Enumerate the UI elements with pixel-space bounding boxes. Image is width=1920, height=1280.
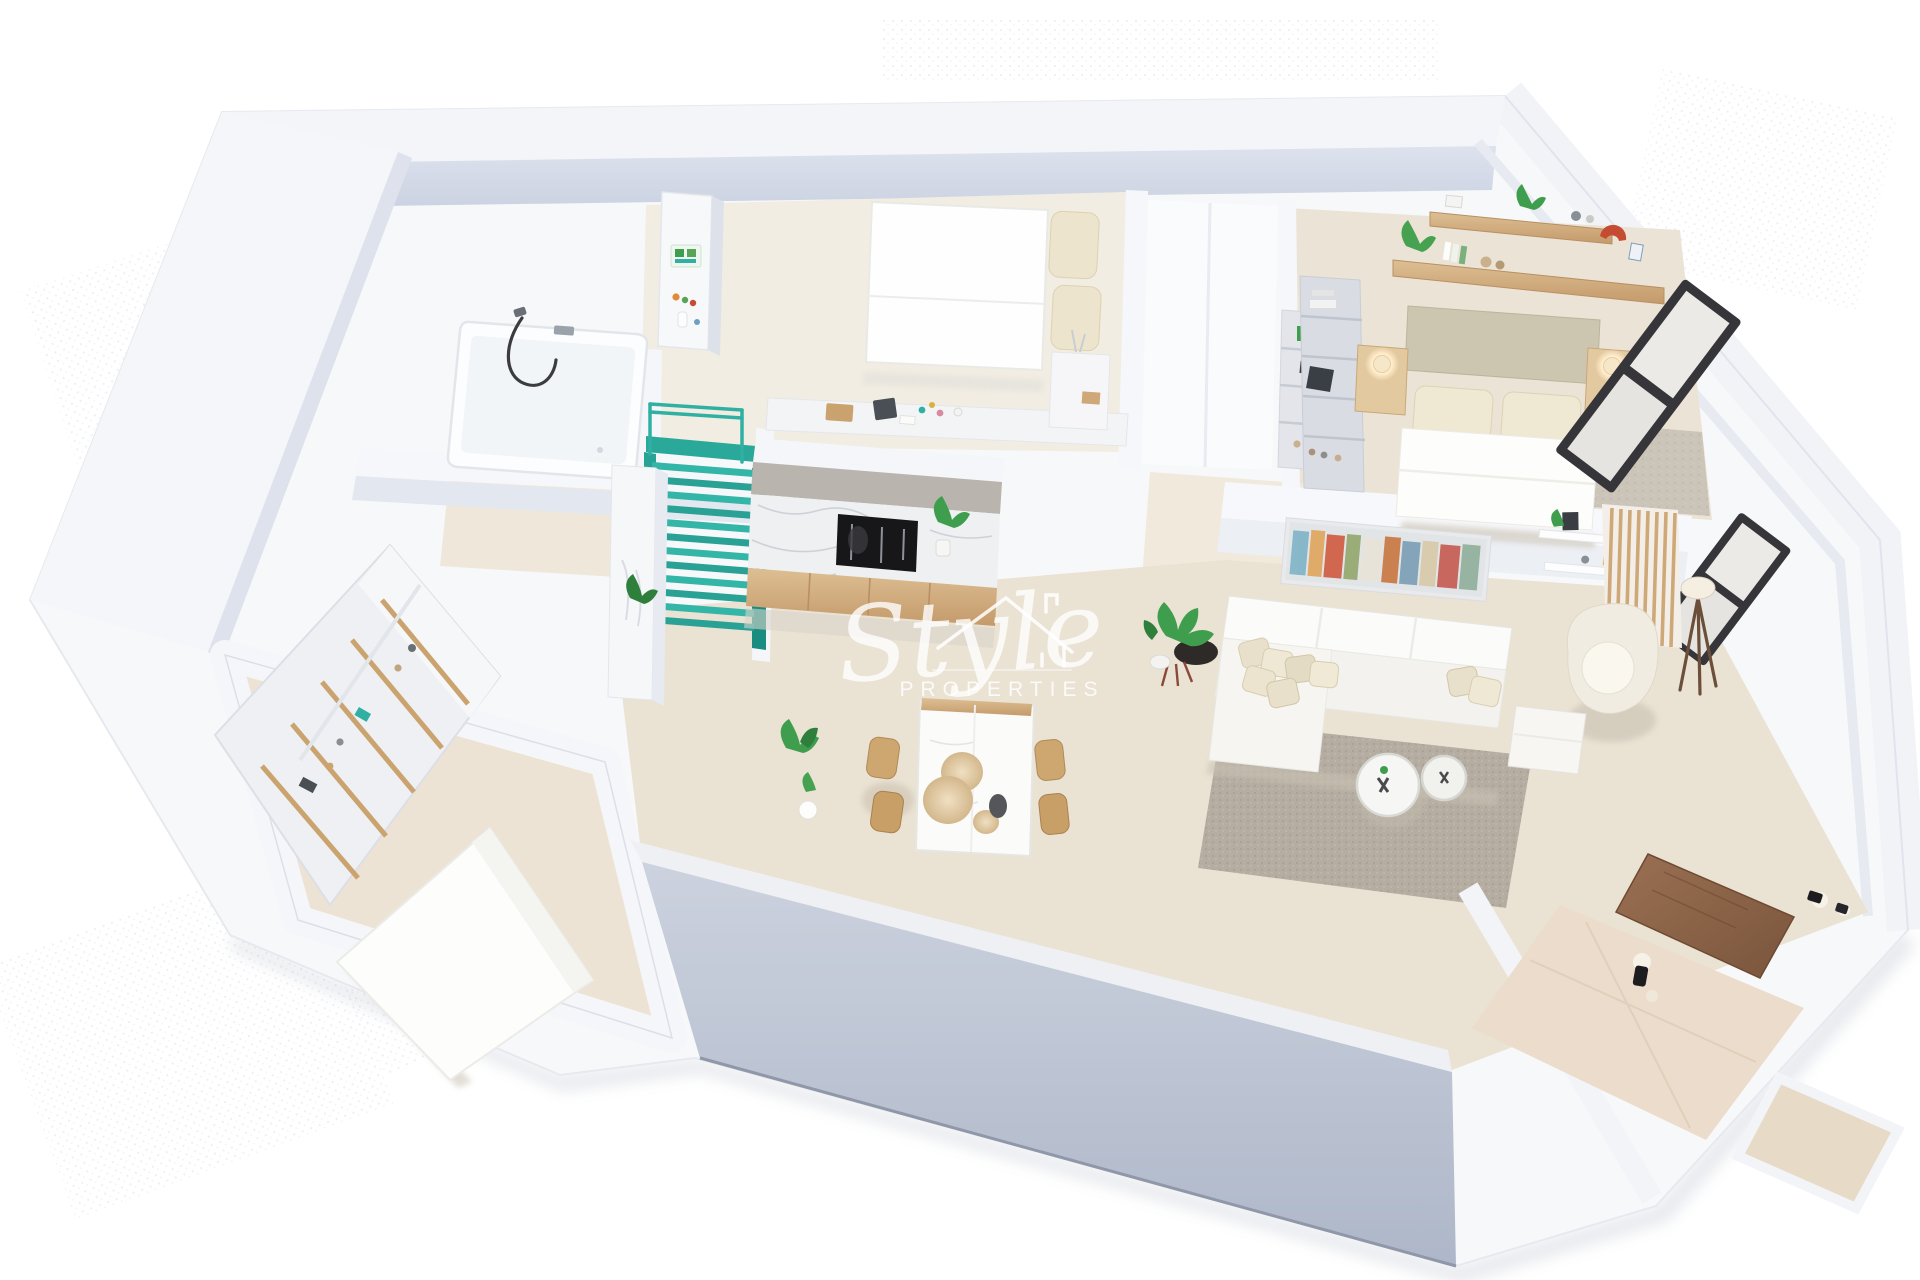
blue-striped-decor [1629, 243, 1644, 261]
bedroom2-wardrobe [1300, 276, 1365, 492]
bed1-pillow-1 [1048, 211, 1099, 279]
bathroom-shelf-column [658, 192, 724, 356]
decor-bead-orange [672, 293, 679, 300]
decor-bead-blue [694, 319, 700, 325]
jacket [1306, 366, 1334, 392]
bathtub-drain [597, 447, 603, 453]
dark-book [873, 398, 898, 421]
bed1-pillow-2 [1050, 285, 1101, 351]
watermark: Style PROPERTIES [833, 567, 1107, 707]
watermark-caps-text: PROPERTIES [900, 678, 1105, 701]
bath-faucet [554, 325, 575, 335]
headboard [1405, 306, 1600, 384]
kitchen-tall-cabinet [608, 465, 668, 706]
decor-bead-red [690, 300, 696, 306]
wood-box [825, 403, 853, 422]
ottoman [1508, 706, 1586, 774]
decor-vase [678, 312, 687, 327]
table-vase [989, 794, 1007, 818]
decor-bead-green [682, 297, 688, 303]
bathtub-inner [461, 336, 635, 464]
floorplan-svg: Style PROPERTIES [0, 0, 1920, 1280]
bed1-duvet [866, 202, 1048, 370]
nightstand-left [1355, 345, 1408, 415]
floorplan-render: Style PROPERTIES [0, 0, 1920, 1280]
